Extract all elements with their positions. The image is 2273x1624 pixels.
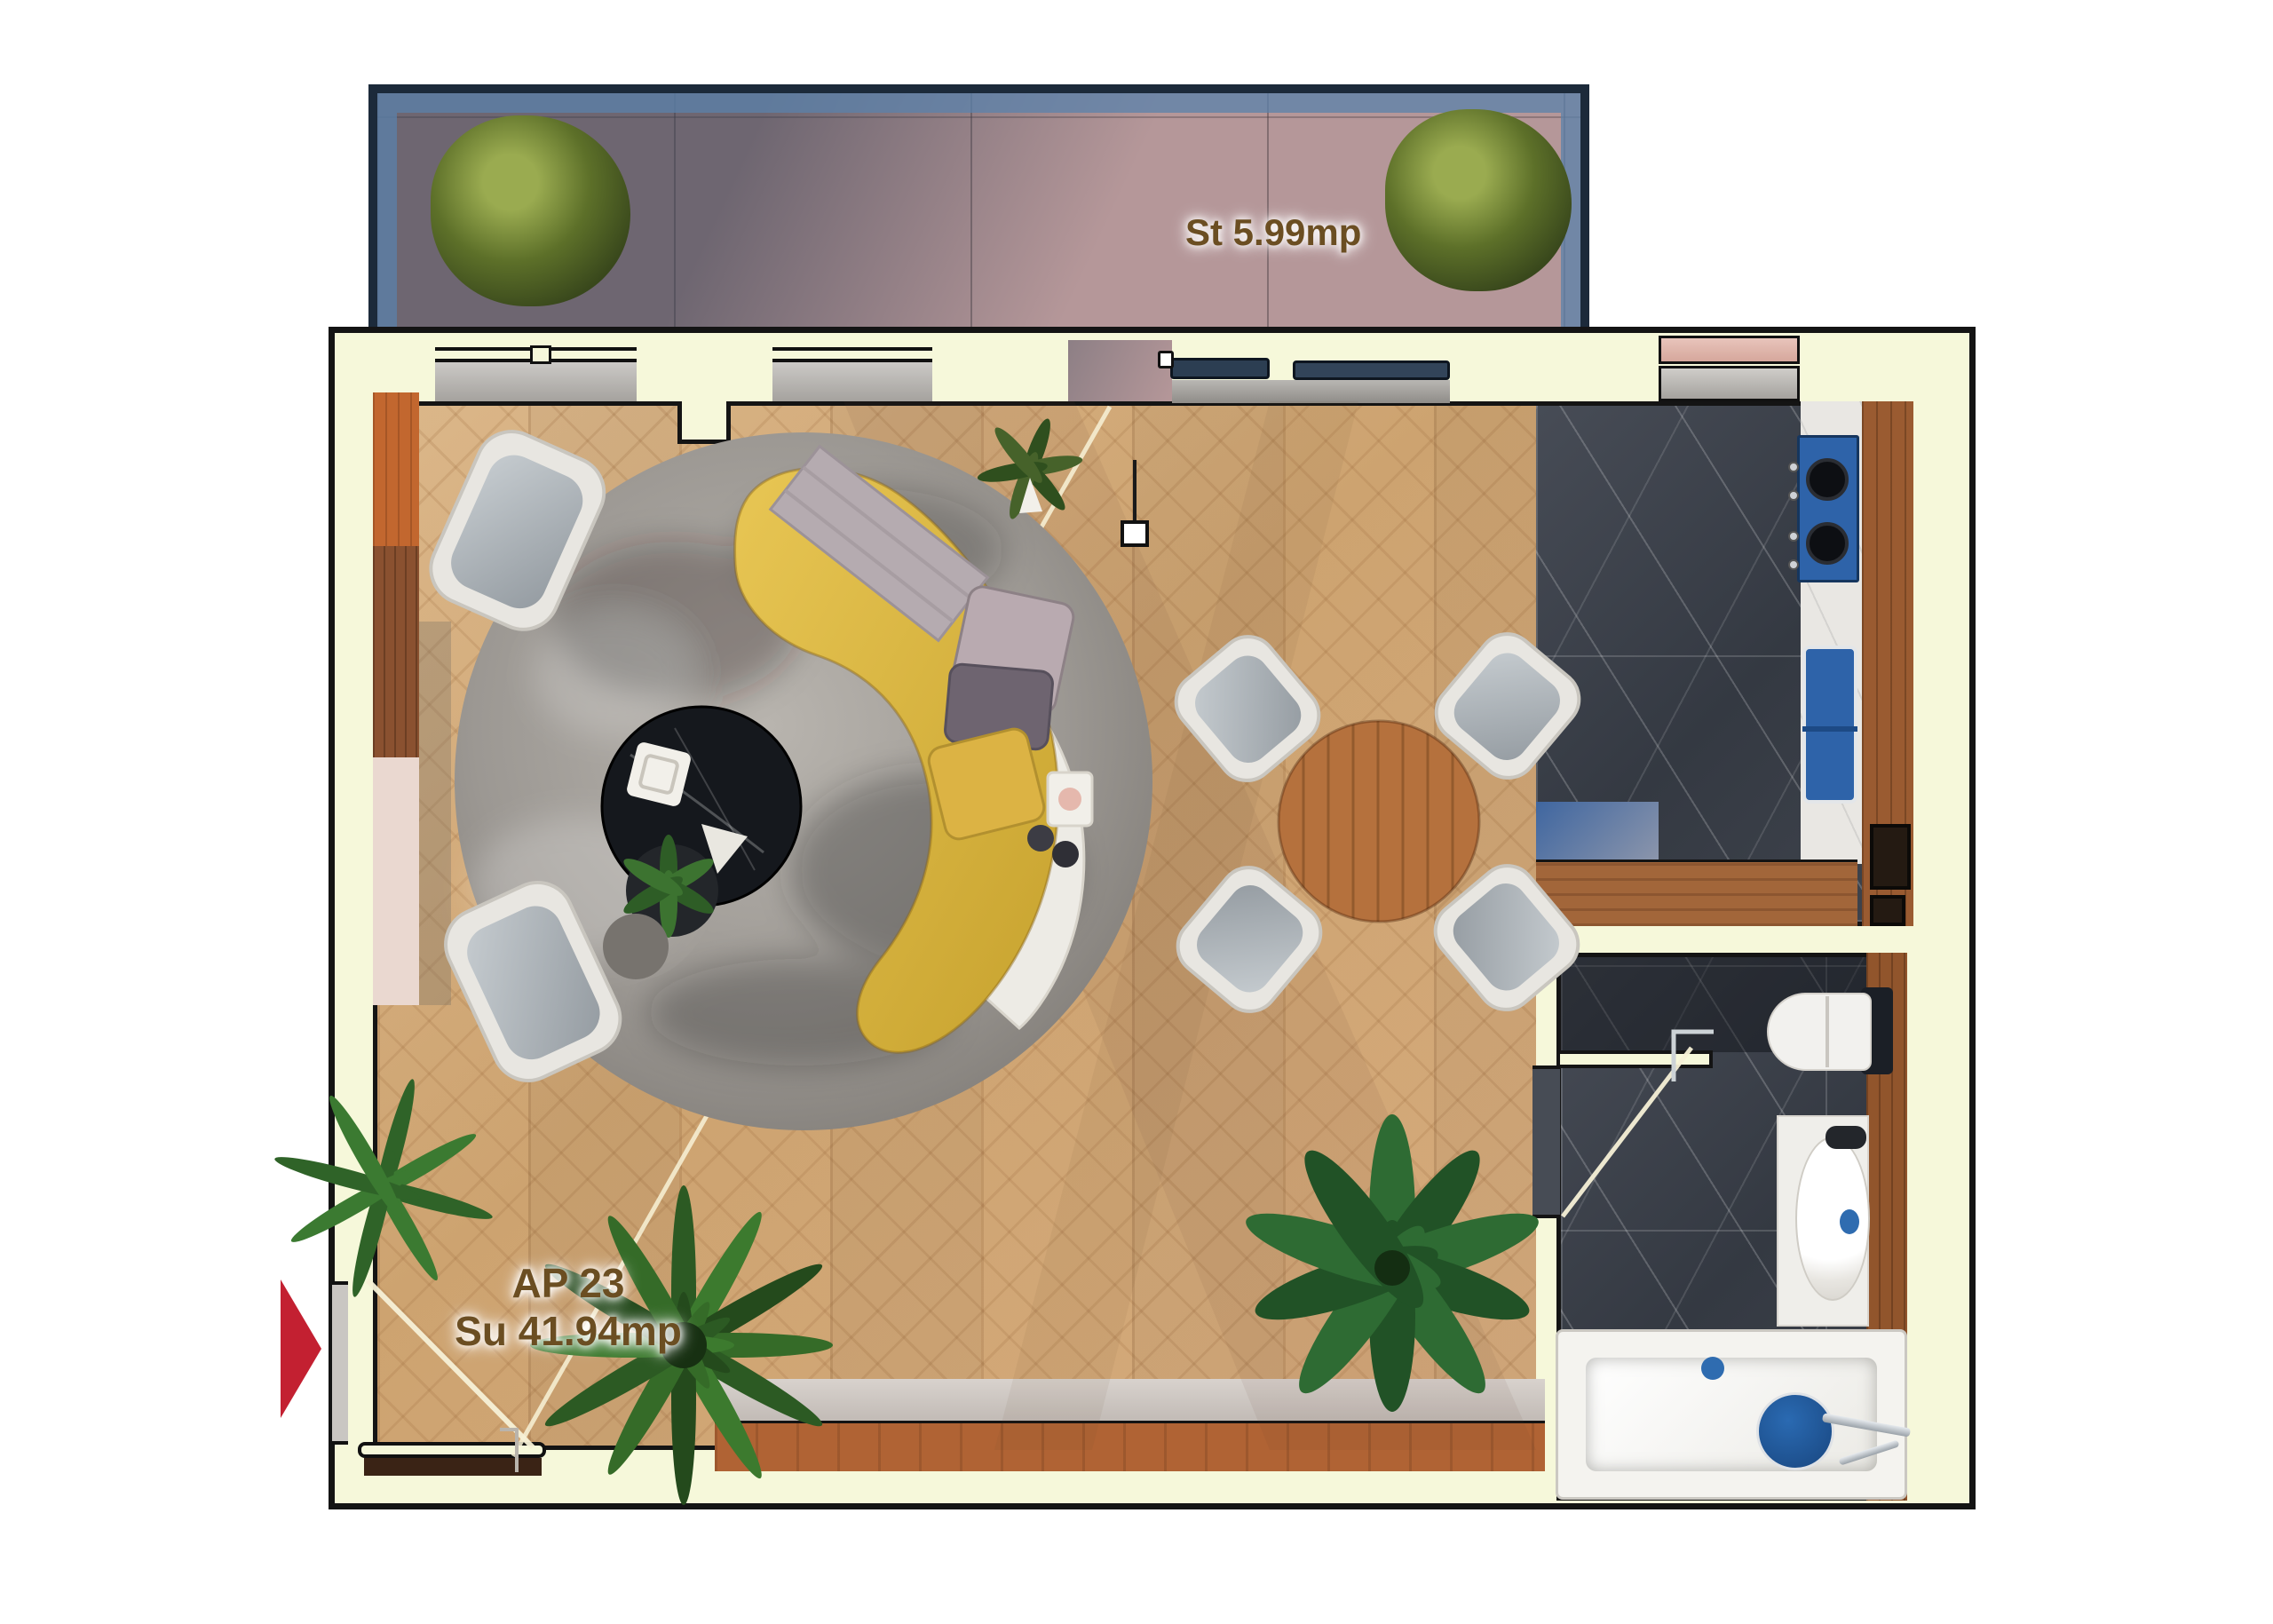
sink-faucet-icon: [1826, 1126, 1866, 1149]
kitchen-window-sill: [1659, 336, 1800, 364]
terrace: [368, 84, 1589, 342]
floor-plan: St 5.99mp AP 23 Su 41.94mp: [0, 0, 2273, 1624]
kitchen-sink-divider: [1802, 726, 1857, 732]
wall-pier: [677, 401, 731, 444]
stove-burner-icon: [1806, 458, 1849, 501]
sliding-door-open-gap: [1068, 340, 1172, 401]
stove-knob-icon: [1788, 462, 1799, 472]
bathroom-partition-wall: [1556, 1050, 1713, 1068]
window-frame: [772, 347, 932, 362]
tv-sideboard-top: [715, 1379, 1545, 1421]
stove-knob-icon: [1788, 490, 1799, 501]
cabinet-shadow: [419, 622, 451, 1005]
stove-burner-icon: [1806, 522, 1849, 565]
wall-niche: [1870, 895, 1905, 926]
toilet: [1767, 993, 1872, 1071]
kitchen-lower-cabinet-blue: [1536, 802, 1659, 860]
terrace-area-label: St 5.99mp: [1185, 211, 1361, 254]
sliding-door-panel: [1170, 358, 1270, 379]
kitchen-sink: [1802, 646, 1857, 804]
stove-knob-icon: [1788, 531, 1799, 542]
dresser: [373, 757, 419, 1005]
entrance-arrow-icon: [281, 1279, 321, 1418]
entry-console: [364, 1458, 542, 1476]
sliding-door-panel: [1293, 360, 1450, 380]
apartment-number: AP 23: [426, 1259, 710, 1307]
terrace-bush-left: [431, 115, 630, 306]
bathtub-faucet: [1756, 1392, 1834, 1470]
kitchen-window-glass: [1659, 366, 1800, 401]
wardrobe-cabinet: [373, 392, 419, 546]
wall-niche: [1870, 824, 1911, 890]
sliding-door-handle-icon: [1158, 351, 1174, 368]
bathtub-drain-icon: [1701, 1357, 1724, 1380]
stove-knob-icon: [1788, 559, 1799, 570]
window-mullion: [530, 345, 551, 364]
toilet-seat-line: [1826, 996, 1829, 1067]
wardrobe-cabinet-lower: [373, 546, 419, 757]
kitchen-counter-bottom: [1536, 860, 1857, 926]
entrance-door-opening: [332, 1281, 348, 1445]
sink-drain-icon: [1840, 1209, 1859, 1234]
balcony-door-glass: [435, 362, 637, 401]
apartment-label: AP 23 Su 41.94mp: [426, 1259, 710, 1355]
sliding-door-sill: [1172, 380, 1450, 403]
tv-sideboard: [715, 1421, 1545, 1471]
window-glass: [772, 362, 932, 401]
terrace-bush-right: [1385, 109, 1572, 291]
entry-console-shelf: [358, 1442, 546, 1458]
apartment-area: Su 41.94mp: [426, 1307, 710, 1355]
bathroom-door-opening: [1532, 1066, 1560, 1218]
